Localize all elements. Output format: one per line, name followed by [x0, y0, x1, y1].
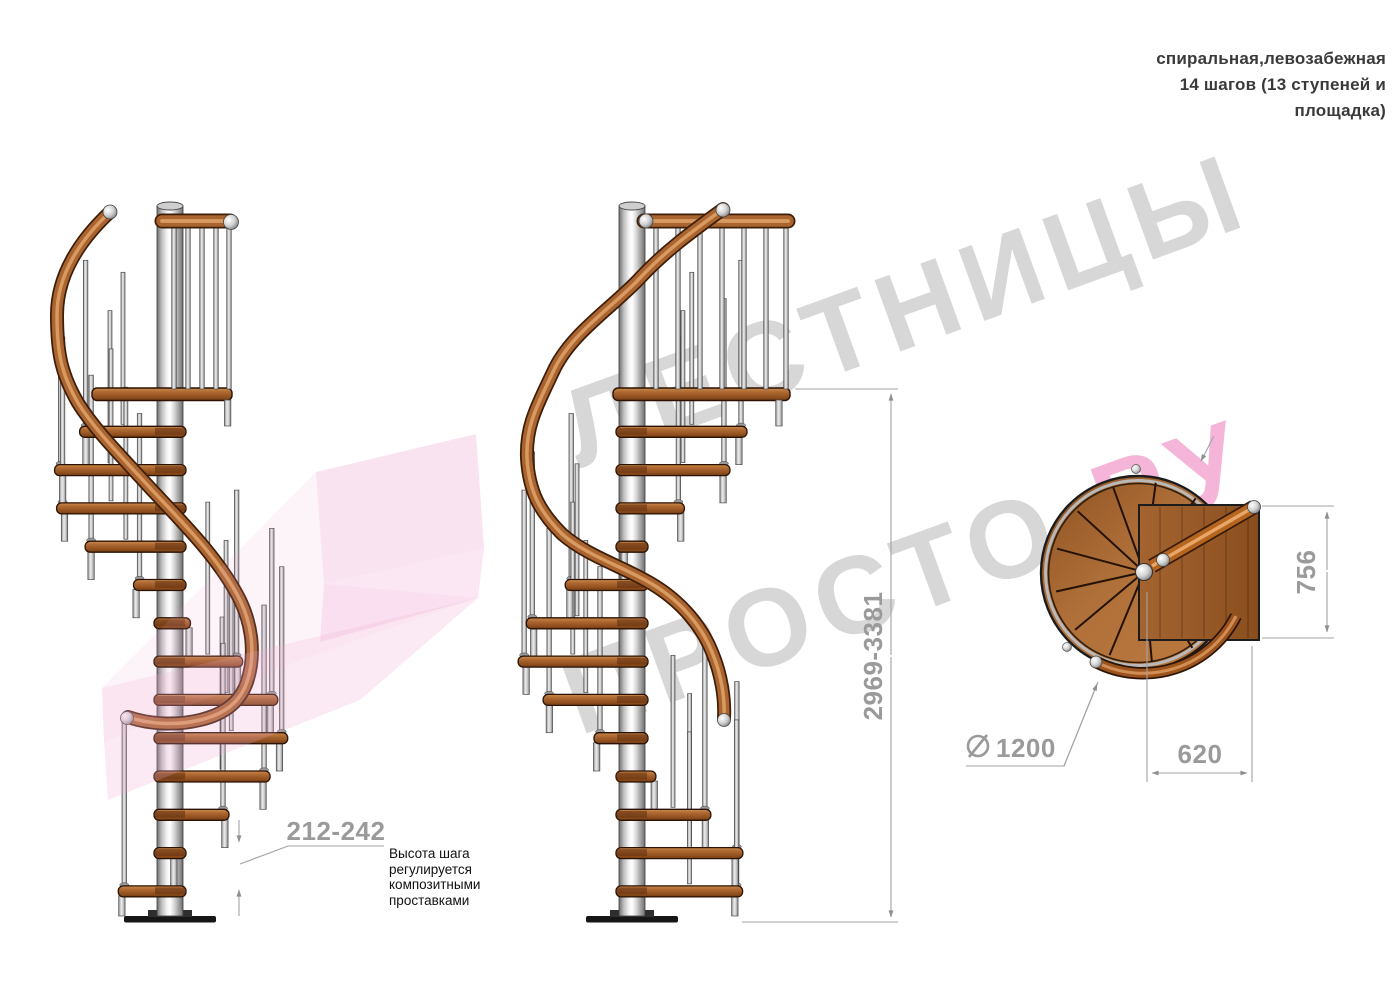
- staircase-drawing-canvas: ЛЕСТНИЦЫ ПРОСТО.РУ: [0, 0, 1400, 1000]
- platform-depth-label: 756: [1291, 550, 1321, 595]
- title-line: спиральная,левозабежная: [1156, 46, 1386, 72]
- title-line: площадка): [1156, 98, 1386, 124]
- note-line: композитными: [389, 877, 519, 893]
- total-height-label: 2969-3381: [858, 592, 888, 721]
- step-rise-label: 212-242: [287, 816, 386, 846]
- step-height-note: Высота шага регулируется композитными пр…: [389, 846, 519, 908]
- plan-rim-connector-top: [1132, 465, 1141, 474]
- platform-width-label: 620: [1178, 739, 1223, 769]
- plan-rim-connector-bottom: [1063, 643, 1072, 652]
- note-line: регулируется: [389, 862, 519, 878]
- note-line: проставками: [389, 893, 519, 909]
- title-line: 14 шагов (13 ступеней и: [1156, 72, 1386, 98]
- dimension-platform-depth: 756: [1262, 506, 1334, 638]
- dimension-step-rise: 212-242: [239, 816, 385, 916]
- drawing-title: спиральная,левозабежная 14 шагов (13 сту…: [1156, 46, 1386, 124]
- plan-center-pole-hub: [1136, 564, 1153, 581]
- note-line: Высота шага: [389, 846, 519, 862]
- technical-drawing-page: ЛЕСТНИЦЫ ПРОСТО.РУ: [0, 0, 1400, 1000]
- diameter-label: 1200: [996, 733, 1056, 763]
